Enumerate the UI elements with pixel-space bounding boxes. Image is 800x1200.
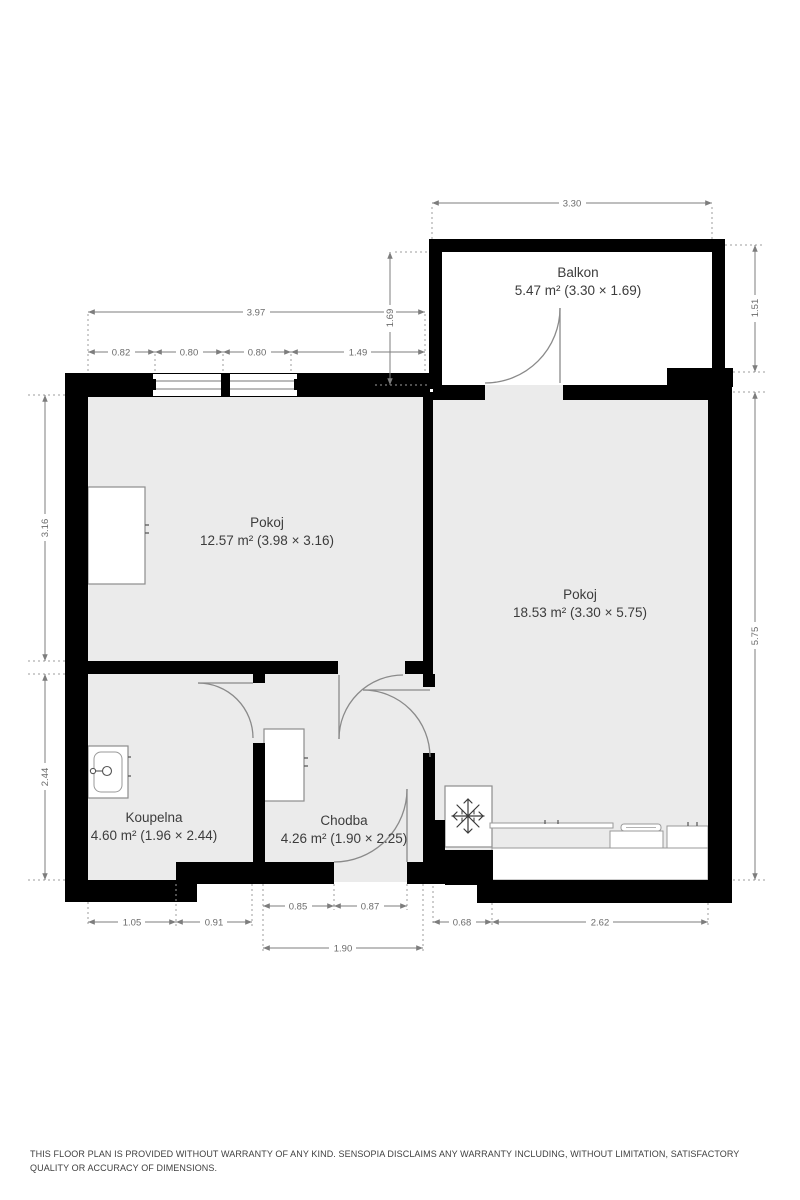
wall-entrance-right	[407, 862, 445, 884]
dim-koupelna-seg2: 0.91	[205, 918, 224, 929]
wall-room1-bottom	[65, 661, 338, 674]
hall-cabinet	[264, 729, 304, 801]
svg-text:Pokoj: Pokoj	[563, 587, 597, 602]
dim-koupelna-seg1: 1.05	[123, 918, 142, 929]
floor-entrance-opening	[334, 862, 407, 882]
wall-hall-right-stub	[423, 674, 435, 687]
floor-balcony-door-opening	[485, 385, 563, 400]
room-label-balkon: Balkon 5.47 m² (3.30 × 1.69)	[515, 265, 641, 298]
wall-room-divider	[423, 392, 433, 674]
fridge	[445, 786, 492, 847]
floor-plan-svg: 3.30 1.69 1.51 3.97 0.82 0.80 0.80 1.49 …	[0, 0, 800, 1200]
dim-koupelna-height: 2.44	[40, 768, 51, 787]
svg-text:4.26 m² (1.90 × 2.25): 4.26 m² (1.90 × 2.25)	[281, 831, 407, 846]
wall-balcony-left	[429, 239, 442, 389]
sink-icon	[88, 746, 131, 798]
dim-balkon-depth-right: 1.51	[750, 299, 761, 318]
svg-text:12.57 m² (3.98 × 3.16): 12.57 m² (3.98 × 3.16)	[200, 533, 334, 548]
svg-text:5.47 m² (3.30 × 1.69): 5.47 m² (3.30 × 1.69)	[515, 283, 641, 298]
disclaimer-text: THIS FLOOR PLAN IS PROVIDED WITHOUT WARR…	[30, 1148, 750, 1176]
wall-right-exterior	[708, 368, 732, 903]
wall-room2-bottom	[477, 880, 732, 903]
svg-text:4.60 m² (1.96 × 2.44): 4.60 m² (1.96 × 2.44)	[91, 828, 217, 843]
floor-room2-door-opening	[423, 687, 433, 753]
dim-pokoj1-seg2: 0.80	[180, 348, 199, 359]
svg-text:Koupelna: Koupelna	[125, 810, 183, 825]
dim-chodba-seg2: 0.87	[361, 902, 380, 913]
floor-room1-door-opening	[338, 661, 405, 674]
wall-bath-divider-top	[253, 661, 265, 683]
door-arc-balcony	[485, 308, 560, 383]
dim-chodba-seg1: 0.85	[289, 902, 308, 913]
room-floors	[88, 385, 708, 882]
dim-pokoj1-height: 3.16	[40, 519, 51, 538]
dim-balkon-width: 3.30	[563, 199, 582, 210]
dim-kitchen-offset: 0.68	[453, 918, 472, 929]
window-icon	[150, 374, 300, 396]
wall-hall-bottom	[253, 862, 334, 884]
svg-text:18.53 m² (3.30 × 5.75): 18.53 m² (3.30 × 5.75)	[513, 605, 647, 620]
wall-hall-right	[423, 753, 435, 820]
wall-balcony-top	[429, 239, 725, 252]
wall-left-exterior	[65, 373, 88, 902]
svg-text:Balkon: Balkon	[557, 265, 598, 280]
floor-bath-door-opening	[253, 683, 265, 743]
wall-room1-bottom-stub	[405, 661, 423, 674]
dim-kitchen-width: 2.62	[591, 918, 610, 929]
dim-chodba-width: 1.90	[334, 944, 353, 955]
wall-room2-top-right	[563, 385, 708, 400]
svg-text:Pokoj: Pokoj	[250, 515, 284, 530]
dim-pokoj1-width: 3.97	[247, 308, 266, 319]
svg-text:Chodba: Chodba	[320, 813, 368, 828]
dim-pokoj1-seg4: 1.49	[349, 348, 368, 359]
dim-pokoj1-seg1: 0.82	[112, 348, 131, 359]
dim-pokoj2-height: 5.75	[750, 627, 761, 646]
wardrobe	[88, 487, 145, 584]
wall-bath-bottom-step	[176, 862, 253, 884]
dim-pokoj1-seg3: 0.80	[248, 348, 267, 359]
wall-balcony-right	[712, 239, 725, 375]
dim-balkon-depth: 1.69	[385, 309, 396, 328]
